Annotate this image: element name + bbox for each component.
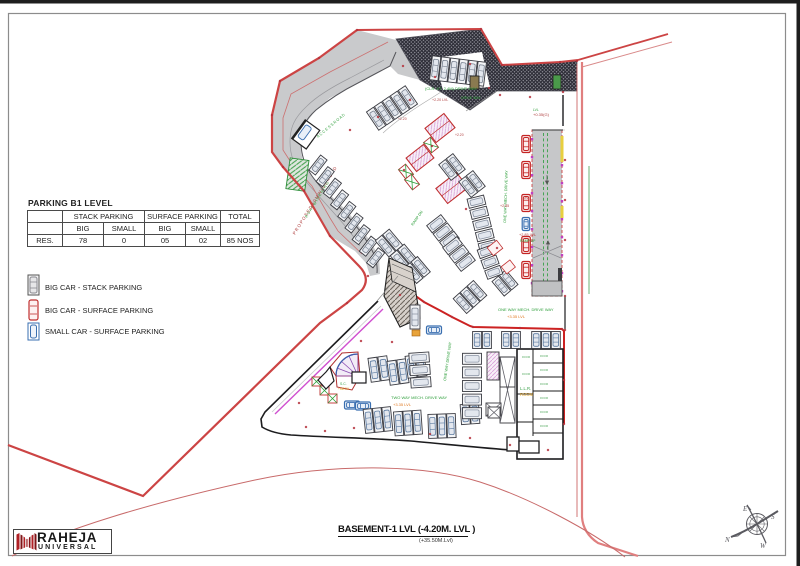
svg-text:TWO WAY MECH. DRIVE WAY: TWO WAY MECH. DRIVE WAY bbox=[391, 395, 447, 400]
svg-text:+0.35(G): +0.35(G) bbox=[533, 112, 550, 117]
svg-text:+3.35 LVL: +3.35 LVL bbox=[393, 402, 412, 407]
svg-text:ONE WAY MECH. DRIVE WAY: ONE WAY MECH. DRIVE WAY bbox=[498, 307, 554, 312]
svg-text:+3.35 LVL: +3.35 LVL bbox=[507, 314, 526, 319]
svg-text:N: N bbox=[724, 536, 730, 544]
svg-text:RAMP UP: RAMP UP bbox=[520, 239, 536, 243]
svg-text:+2.85: +2.85 bbox=[500, 204, 509, 208]
svg-text:ROOM: ROOM bbox=[540, 368, 548, 372]
svg-text:DN: DN bbox=[523, 196, 528, 200]
svg-text:S.C.: S.C. bbox=[340, 382, 347, 386]
svg-text:+2.85 LVL: +2.85 LVL bbox=[519, 233, 536, 237]
svg-text:ROOM: ROOM bbox=[540, 424, 548, 428]
svg-text:LVL: LVL bbox=[533, 108, 539, 112]
svg-text:(CLR. HT. 2.4M) DRIVE WAY: (CLR. HT. 2.4M) DRIVE WAY bbox=[425, 86, 477, 91]
svg-text:+2.20 LVL: +2.20 LVL bbox=[432, 98, 448, 102]
svg-text:ROOM: ROOM bbox=[540, 410, 548, 414]
svg-text:ROOM: ROOM bbox=[540, 382, 548, 386]
svg-text:E: E bbox=[742, 505, 748, 513]
svg-text:S: S bbox=[771, 513, 775, 521]
svg-text:ROOM: ROOM bbox=[520, 392, 534, 397]
svg-text:DRIVE WAY: DRIVE WAY bbox=[461, 96, 481, 100]
svg-text:ROOM: ROOM bbox=[522, 355, 530, 359]
svg-text:+2.20: +2.20 bbox=[455, 133, 464, 137]
svg-text:ROOM: ROOM bbox=[540, 354, 548, 358]
svg-text:+MECH: +MECH bbox=[338, 387, 350, 391]
svg-text:L.L.R.: L.L.R. bbox=[520, 386, 531, 391]
svg-text:ROOM: ROOM bbox=[540, 396, 548, 400]
svg-text:ROOM: ROOM bbox=[522, 372, 530, 376]
